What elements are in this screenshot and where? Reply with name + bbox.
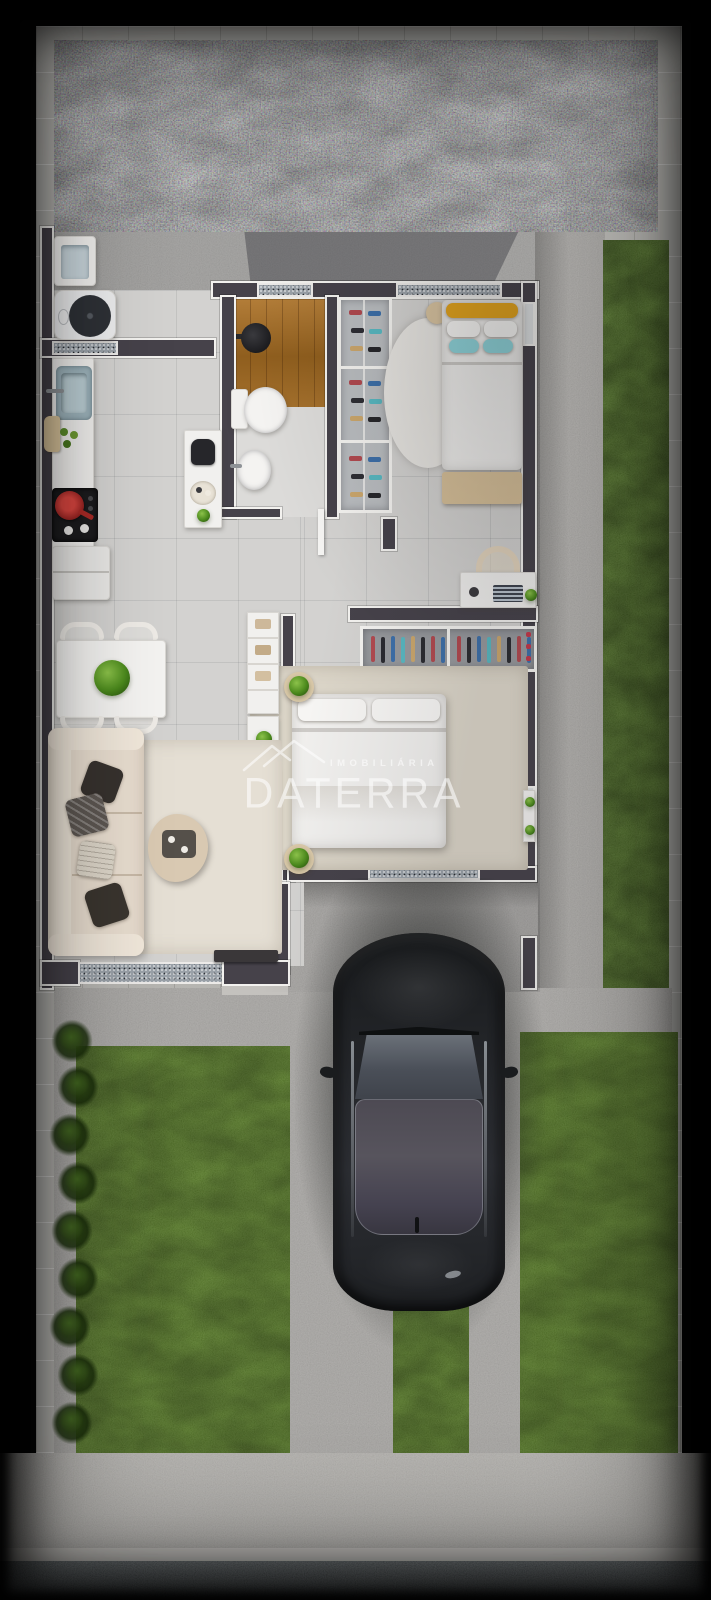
floorplan-render: IMOBILIÁRIA DATERRA: [0, 0, 711, 1600]
hood-shine: [353, 945, 485, 1029]
wall-front-door: [222, 960, 290, 986]
hanging-clothes: [457, 636, 461, 662]
pedestal-sink: [237, 450, 271, 490]
pillow-white: [447, 321, 480, 337]
red-pan: [55, 491, 84, 520]
desk-lamp: [469, 587, 479, 597]
wall-living-south-a: [40, 960, 80, 986]
centerpiece-plant: [94, 660, 130, 696]
sink-basin: [61, 373, 87, 413]
nightstand-plant: [289, 676, 309, 696]
hanging-clothes: [371, 636, 375, 662]
washer-drum: [69, 295, 111, 337]
dining-chair: [114, 622, 158, 640]
hedge-bush: [44, 1394, 100, 1452]
washing-machine: [54, 290, 116, 340]
wall-bedroom-divider: [348, 606, 538, 622]
vegetables: [60, 428, 68, 436]
duvet-fold: [292, 728, 446, 732]
duvet-fold: [442, 362, 522, 365]
window-bedroom1: [396, 283, 502, 297]
serving-tray: [190, 481, 216, 505]
watermark: IMOBILIÁRIA DATERRA: [238, 736, 470, 832]
car: [333, 933, 505, 1311]
desk: [460, 572, 536, 608]
fridge: [52, 546, 110, 600]
pillow-teal: [483, 339, 513, 353]
wall-carport-stub: [521, 936, 537, 990]
window-living-front: [78, 962, 224, 984]
bed-1: [442, 300, 522, 470]
table-tray: [162, 830, 196, 858]
shoe-row: [349, 380, 362, 385]
entry-step: [222, 986, 288, 995]
toilet-bowl: [244, 387, 287, 433]
sofa: [48, 728, 144, 956]
carport-wall-shadow: [288, 882, 538, 908]
wall-hooks: [526, 632, 531, 637]
closet-shelf: [341, 366, 389, 369]
backyard-gravel: [54, 40, 658, 232]
espresso-machine: [191, 439, 215, 465]
glass-edge-left: [351, 1041, 354, 1237]
pillow-teal: [449, 339, 479, 353]
trunk-shine: [363, 1237, 475, 1293]
shower-head: [241, 323, 271, 353]
shelf-towels: [255, 619, 271, 629]
sink-faucet: [46, 389, 64, 393]
front-lawn-right: [520, 1032, 678, 1453]
fridge-door-seam: [53, 571, 109, 573]
pillow-yellow: [446, 303, 518, 318]
cooktop-burners: [88, 496, 93, 501]
curb: [0, 1548, 711, 1561]
pillow-white: [298, 699, 366, 721]
window-bathroom: [257, 283, 313, 297]
front-lawn-left: [76, 1046, 290, 1453]
coffee-cups: [196, 487, 202, 493]
sofa-pillow-light: [76, 840, 117, 881]
window-kitchen: [52, 341, 118, 355]
window-shelf: [523, 790, 535, 842]
nightstand: [284, 844, 314, 874]
laundry-tub: [54, 236, 96, 286]
wall-hall-stub: [381, 517, 397, 551]
tray-decor: [168, 836, 175, 843]
closet-rail: [363, 300, 365, 510]
shoe-row: [349, 456, 362, 461]
window-bedroom1-side: [523, 302, 535, 346]
herb-plant: [197, 509, 210, 522]
kitchen-sink: [56, 366, 92, 420]
shoe-row: [349, 310, 362, 315]
dining-chair: [60, 622, 104, 640]
car-antenna: [415, 1217, 419, 1233]
closet-shelf: [341, 440, 389, 443]
cutting-board: [44, 416, 60, 452]
walkway-shadow: [535, 232, 569, 1032]
car-roof-glass: [355, 1099, 483, 1235]
sink-tap: [230, 464, 242, 468]
laptop: [493, 585, 523, 602]
sidewalk: [0, 1453, 711, 1561]
brand-main-text: DATERRA: [232, 769, 476, 818]
laundry-tub-basin: [61, 245, 89, 279]
pillow-white: [484, 321, 517, 337]
pillow-white: [372, 699, 440, 721]
sofa-armrest: [48, 728, 144, 750]
street-asphalt: [0, 1561, 711, 1600]
sofa-pillow-dark: [83, 881, 131, 929]
bathroom-door: [318, 509, 324, 555]
desk-plant: [525, 589, 537, 601]
hedge-plants: [42, 1012, 102, 1452]
nightstand-plant: [289, 848, 309, 868]
nightstand: [284, 672, 314, 702]
coffee-bar: [184, 430, 222, 528]
bed-bench: [442, 472, 522, 504]
wall-bathroom-east: [325, 295, 339, 519]
shelf-unit: [247, 612, 279, 714]
tv-console: [214, 950, 278, 962]
car-windshield: [355, 1035, 483, 1099]
cooktop-knobs: [80, 524, 89, 533]
side-lawn-strip: [603, 240, 669, 1032]
sill-plant: [525, 797, 535, 807]
washer-dial: [58, 309, 69, 325]
brand-top-text: IMOBILIÁRIA: [330, 758, 439, 769]
wall-bathroom-south: [220, 507, 282, 519]
sofa-armrest: [48, 934, 144, 956]
sill-plant: [525, 825, 535, 835]
glass-edge-right: [484, 1041, 487, 1237]
wardrobe-divider: [447, 629, 450, 669]
